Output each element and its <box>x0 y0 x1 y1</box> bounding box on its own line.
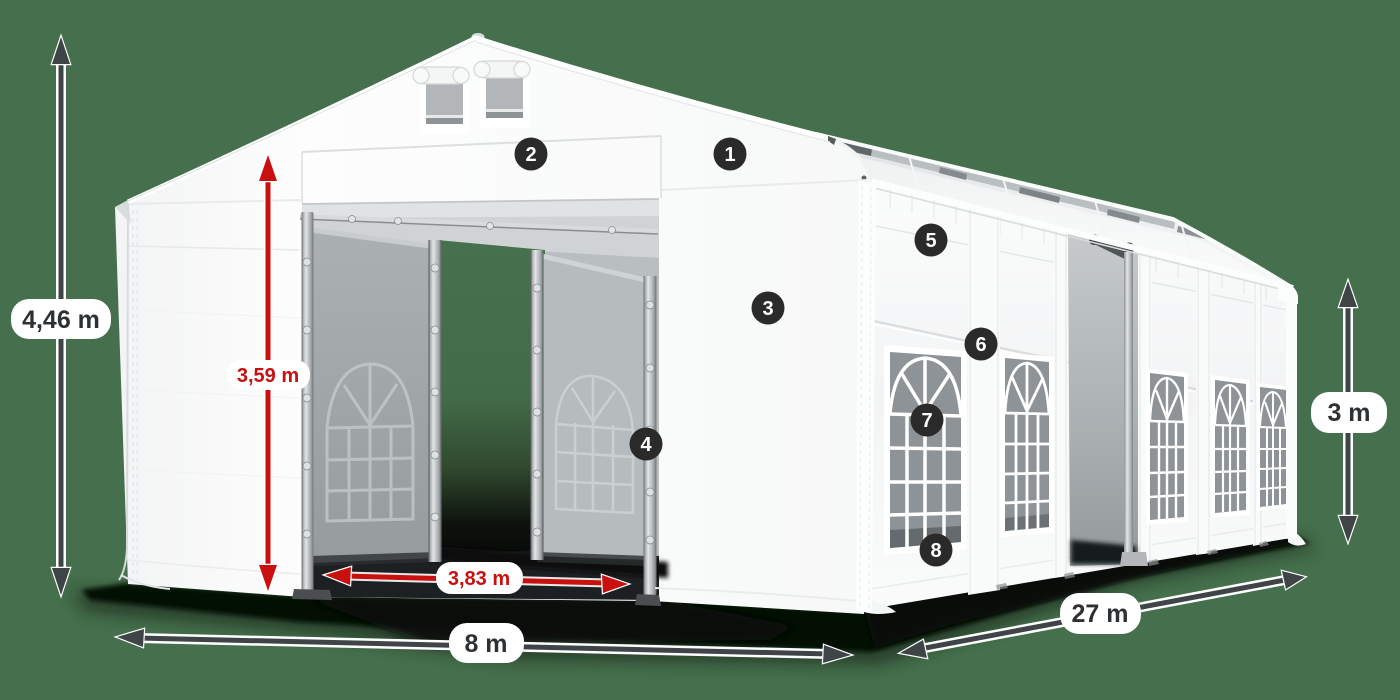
svg-text:1: 1 <box>724 144 735 166</box>
svg-text:3,83 m: 3,83 m <box>448 568 510 590</box>
svg-text:3,59 m: 3,59 m <box>237 365 299 387</box>
svg-text:4: 4 <box>640 434 652 456</box>
svg-text:8 m: 8 m <box>464 630 507 658</box>
svg-text:2: 2 <box>525 144 536 166</box>
svg-text:4,46 m: 4,46 m <box>22 306 100 334</box>
svg-text:27 m: 27 m <box>1072 600 1129 628</box>
svg-text:3: 3 <box>762 298 773 320</box>
svg-text:8: 8 <box>930 540 941 562</box>
svg-text:6: 6 <box>975 334 986 356</box>
svg-text:5: 5 <box>925 230 936 252</box>
svg-text:3 m: 3 m <box>1327 399 1370 427</box>
svg-text:7: 7 <box>921 410 932 432</box>
